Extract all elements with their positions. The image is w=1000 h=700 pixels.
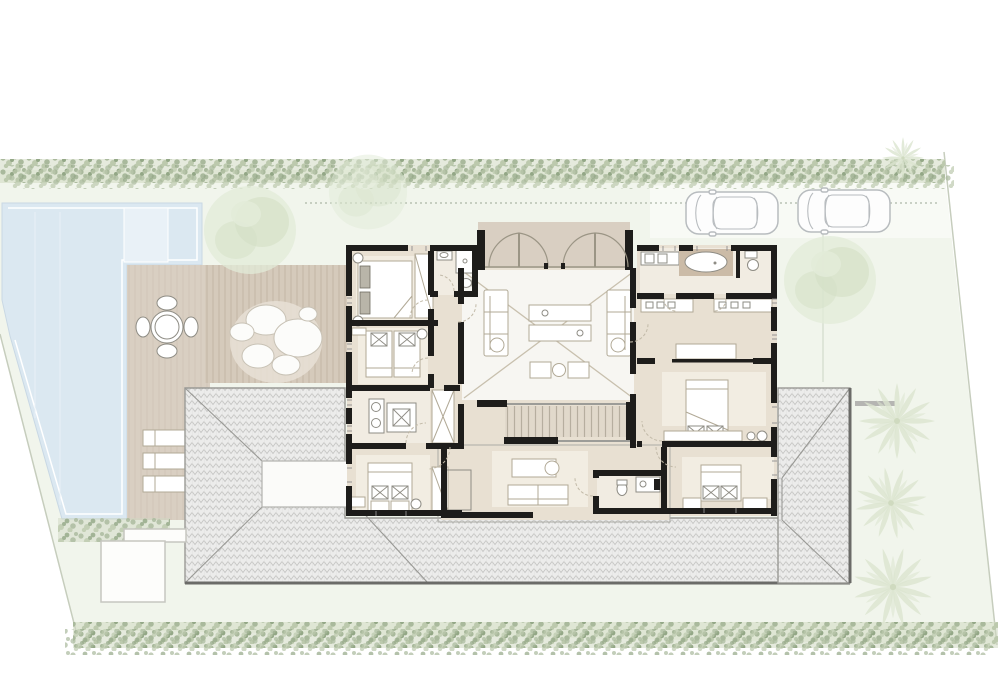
garden-shed	[101, 541, 165, 602]
canopy-tree-1	[204, 186, 296, 274]
bedroom-1	[353, 253, 433, 326]
bathtub	[685, 252, 727, 272]
basin	[748, 260, 759, 271]
canopy-tree-3	[784, 236, 876, 324]
nightstand-lamp	[417, 329, 427, 339]
terrace-jamb-east	[625, 230, 633, 270]
nightstand-lamp	[353, 253, 363, 263]
desk-chair	[545, 461, 559, 475]
media-wall	[672, 359, 754, 363]
pool-steps	[124, 208, 168, 262]
nightstand-lamp	[411, 499, 421, 509]
terrace-jamb-west	[477, 230, 485, 270]
side-table-left	[490, 338, 504, 352]
parked-car-2	[798, 188, 890, 234]
garden-step	[124, 529, 186, 542]
pouf-2	[568, 362, 589, 378]
hedge-top	[0, 159, 954, 189]
stool	[747, 432, 755, 440]
roof-skylight	[262, 461, 358, 507]
timber-deck	[205, 265, 347, 383]
side-table-right	[611, 338, 625, 352]
foot-bench	[664, 431, 742, 441]
round-table	[151, 311, 183, 343]
pouf-table	[553, 364, 566, 377]
wardrobe-run-left	[641, 299, 693, 312]
pouf-1	[530, 362, 551, 378]
powder-shelf	[745, 251, 757, 258]
roof-right-wing	[778, 388, 850, 583]
coffee-table-1	[529, 305, 591, 321]
sun-loungers	[143, 430, 187, 492]
tv-console	[676, 344, 736, 359]
entrance-terrace	[478, 222, 630, 268]
parked-car-1	[686, 190, 778, 236]
stool	[757, 431, 767, 441]
shelf	[352, 328, 366, 335]
canopy-tree-2	[329, 155, 407, 230]
bedroom-2	[352, 328, 428, 384]
boulder-cluster	[230, 301, 322, 383]
nightstand	[351, 497, 365, 507]
site-plan-canvas	[0, 0, 1000, 700]
hedge-bottom	[65, 622, 998, 655]
coffee-table-2	[529, 325, 591, 341]
floor-plan-drawing	[0, 0, 1000, 700]
